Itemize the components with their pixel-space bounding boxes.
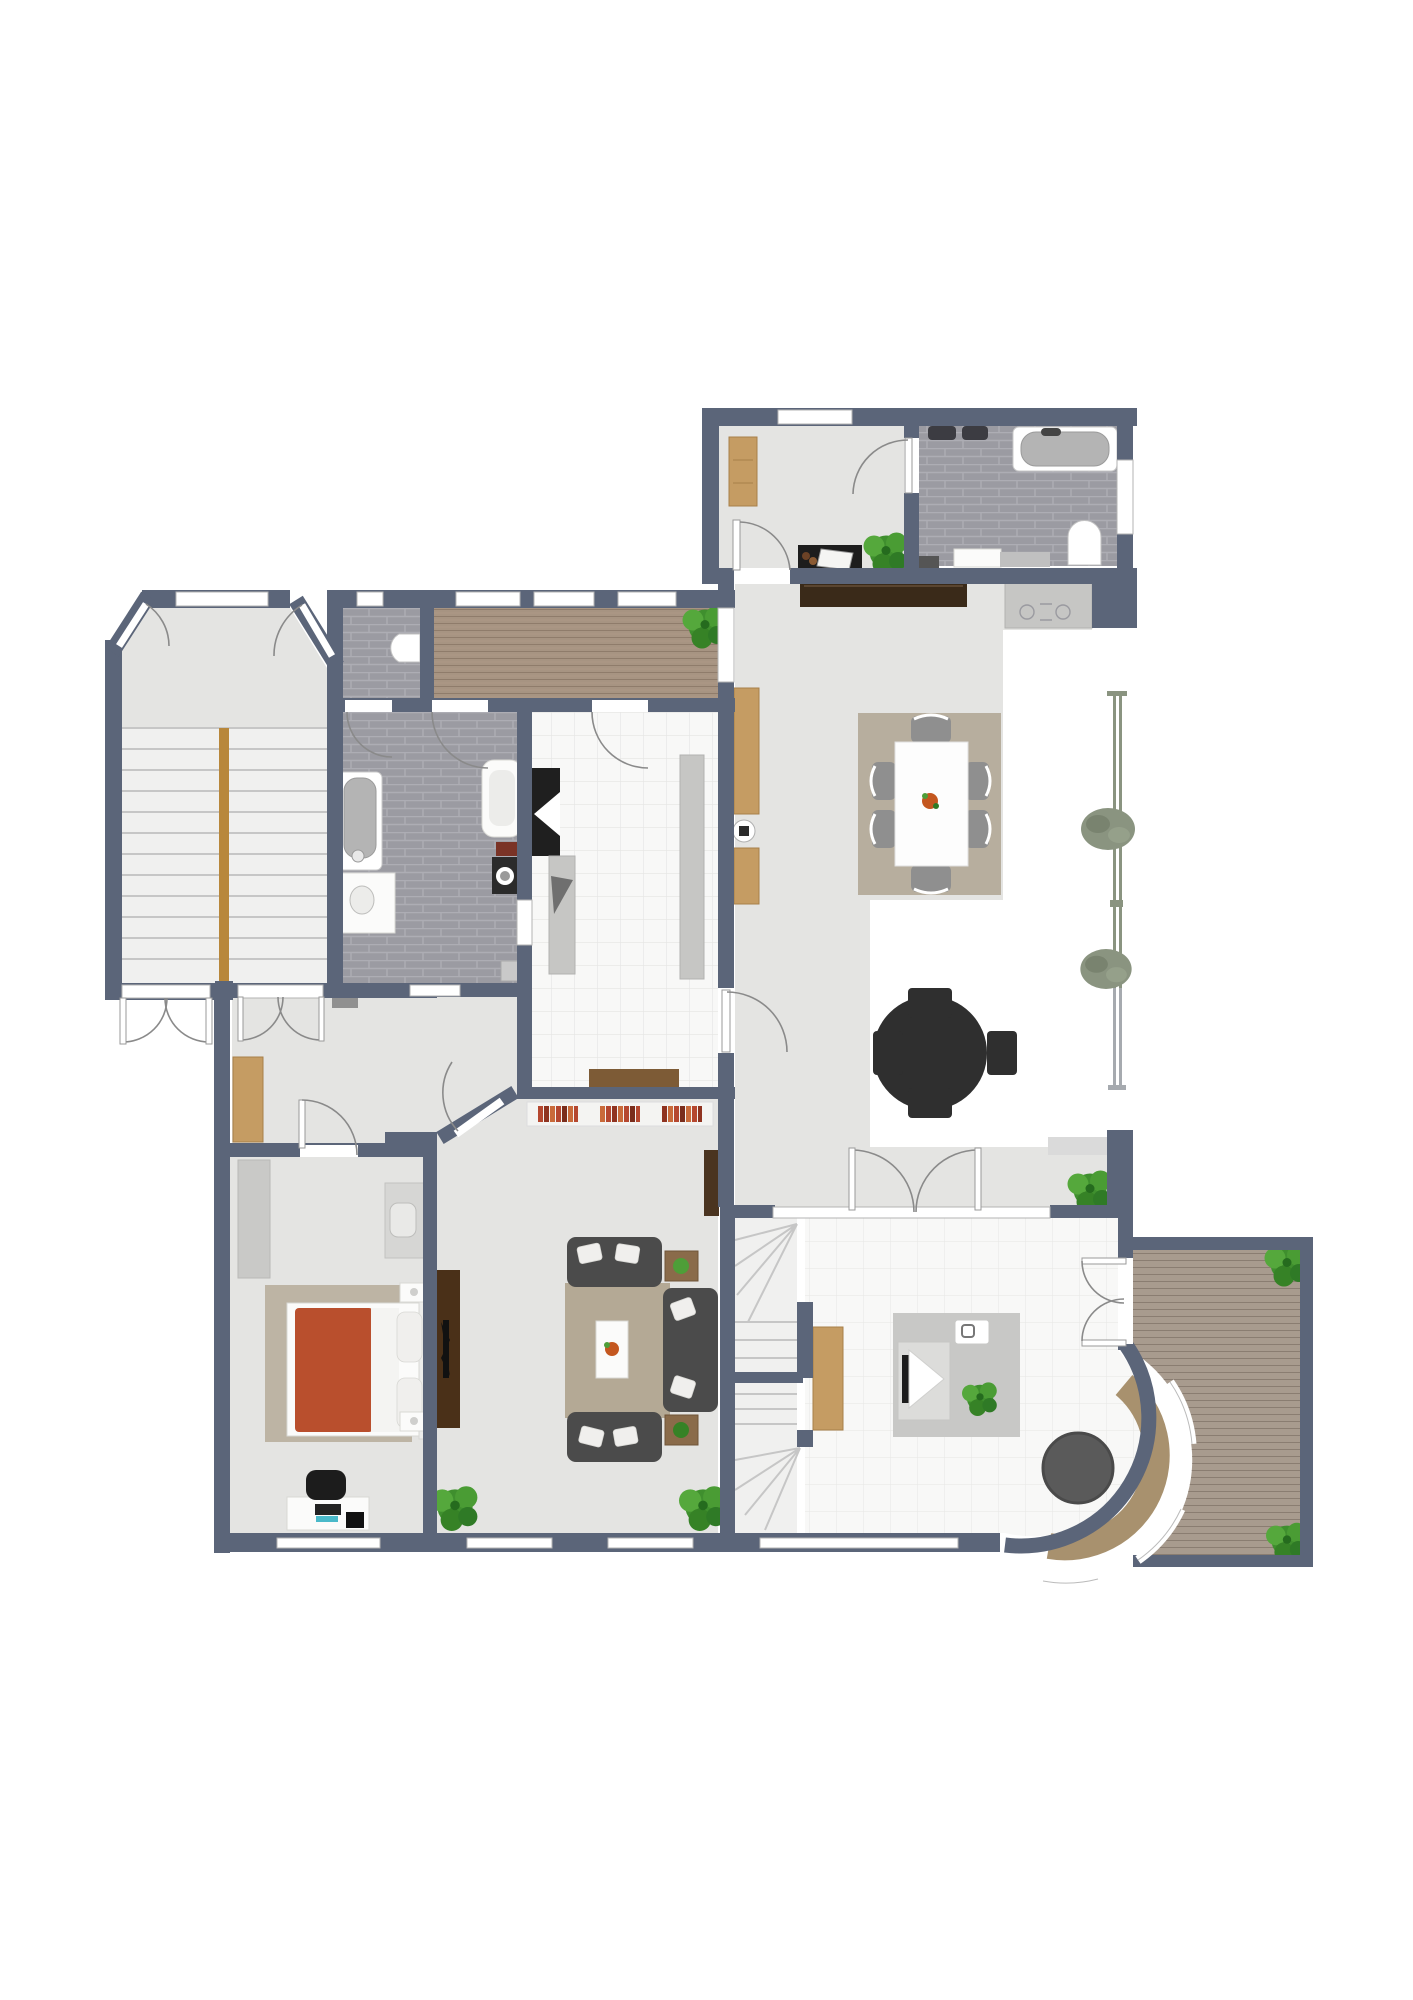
wall-sink-2 xyxy=(962,426,988,440)
window xyxy=(778,410,852,424)
corner-cabinet xyxy=(704,1150,719,1216)
shower-vanity-basin xyxy=(489,770,515,826)
floor-plan-page xyxy=(0,0,1413,2000)
door-opening xyxy=(300,1145,358,1157)
hedge-icon xyxy=(1080,949,1131,989)
washer-drum-inner xyxy=(500,871,510,881)
wc-toilet xyxy=(391,634,420,662)
bed-pillow xyxy=(397,1312,422,1362)
glazed-threshold xyxy=(773,1207,1050,1218)
floor-plan-canvas xyxy=(0,0,1413,2000)
office-chair xyxy=(306,1470,346,1500)
patio-cross-table xyxy=(873,988,1017,1118)
side-table-plant-2 xyxy=(673,1422,689,1438)
door-leaf xyxy=(1082,1340,1126,1346)
centerpiece-leaf-2 xyxy=(933,803,939,809)
window xyxy=(618,592,676,606)
door-leaf xyxy=(238,997,243,1041)
window xyxy=(718,608,734,682)
stair-handrail xyxy=(219,728,229,983)
window xyxy=(1117,460,1133,534)
wall-cabinet-lower xyxy=(734,848,759,904)
sofa-pillow-4 xyxy=(613,1426,639,1447)
double-door xyxy=(238,985,323,998)
window xyxy=(176,592,268,606)
bathtub-main-drain xyxy=(352,850,364,862)
vanity-basin xyxy=(350,886,374,914)
door-leaf xyxy=(299,1100,305,1148)
desk-accessory xyxy=(316,1516,338,1522)
notepad xyxy=(955,1320,989,1344)
radiator xyxy=(332,997,358,1008)
door-leaf xyxy=(722,990,730,1052)
camera xyxy=(346,1512,364,1528)
door-leaf xyxy=(905,438,912,493)
tv-screen xyxy=(443,1320,449,1378)
laundry-basket xyxy=(496,842,518,856)
garden-cabinet xyxy=(813,1327,843,1430)
wall-cabinet-upper xyxy=(734,688,759,814)
window xyxy=(456,592,520,606)
interior-window xyxy=(517,900,532,945)
vanity-chair xyxy=(390,1203,416,1237)
window xyxy=(608,1538,693,1548)
study-wardrobe xyxy=(729,437,757,506)
door-opening xyxy=(1118,1258,1133,1344)
balcony-railing xyxy=(1080,691,1135,1090)
books xyxy=(538,1106,702,1122)
french-door xyxy=(122,985,210,998)
wood-corridor-planks xyxy=(434,608,718,698)
door-opening xyxy=(734,568,790,584)
centerpiece-leaf xyxy=(922,793,928,799)
bed-duvet xyxy=(295,1308,373,1432)
door-opening xyxy=(432,700,488,712)
door-opening xyxy=(592,700,648,712)
bath-counter xyxy=(1000,552,1050,567)
nightstand-knob xyxy=(410,1288,418,1296)
roof-deck-planks xyxy=(1133,1250,1300,1555)
bed-sheet-fold xyxy=(371,1308,399,1432)
door-swing xyxy=(165,998,209,1042)
hallway-wardrobe xyxy=(233,1057,263,1142)
door-leaf xyxy=(319,997,324,1041)
window xyxy=(534,592,594,606)
railing-cap-bottom xyxy=(1108,1085,1126,1090)
door-leaf xyxy=(975,1148,981,1210)
window xyxy=(357,592,383,606)
hedge-icon xyxy=(1081,808,1135,850)
kitchen-counter-left xyxy=(549,856,575,974)
bathtub-main-basin xyxy=(344,778,376,858)
patio-step xyxy=(1048,1137,1110,1155)
kitchen-counter-right xyxy=(680,755,704,979)
bath-vanity xyxy=(954,549,1001,567)
bathtub-faucet xyxy=(1041,428,1061,436)
bath-scale xyxy=(919,556,939,568)
laptop-base xyxy=(902,1355,909,1403)
door-leaf xyxy=(206,998,212,1044)
nightstand-knob-2 xyxy=(410,1417,418,1425)
laptop xyxy=(315,1504,341,1515)
bedroom-closet xyxy=(238,1160,270,1278)
bathtub-basin xyxy=(1021,432,1109,466)
flower-leaf xyxy=(604,1342,610,1348)
wall-sink xyxy=(928,426,956,440)
desk-mug-2 xyxy=(809,557,817,565)
railing-gray-lower-2 xyxy=(1119,988,1122,1088)
stove-core xyxy=(739,826,749,836)
door-leaf xyxy=(1082,1258,1126,1264)
door-leaf xyxy=(733,520,740,570)
door-leaf xyxy=(849,1148,855,1210)
railing-cap-top xyxy=(1107,691,1127,696)
railing-joint xyxy=(1110,900,1123,907)
door-swing xyxy=(123,998,167,1042)
small-sink xyxy=(501,961,518,981)
window xyxy=(760,1538,958,1548)
window xyxy=(277,1538,380,1548)
door-opening xyxy=(345,700,392,712)
main-staircase xyxy=(122,728,327,1000)
window xyxy=(467,1538,552,1548)
toilet xyxy=(1068,521,1101,566)
desk-mug xyxy=(802,552,810,560)
door-leaf xyxy=(120,998,126,1044)
study-desk-paper xyxy=(817,549,853,570)
railing-gray-lower xyxy=(1113,988,1116,1088)
side-table-plant xyxy=(673,1258,689,1274)
window xyxy=(410,985,460,996)
sofa-pillow-2 xyxy=(615,1243,640,1263)
